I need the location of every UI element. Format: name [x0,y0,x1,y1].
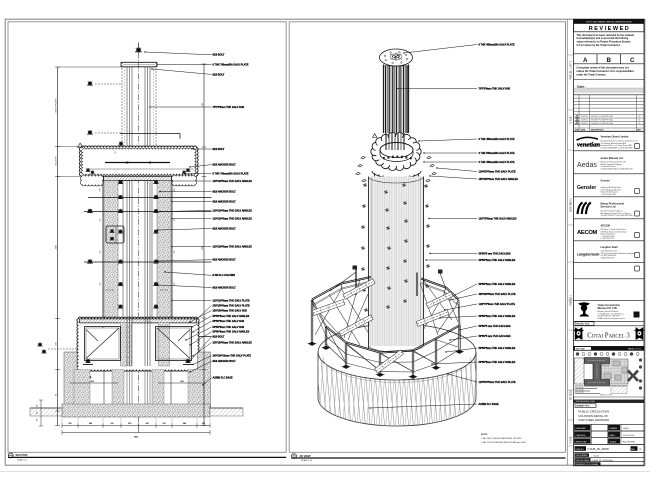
svg-text:Venetian Orient Limited: Venetian Orient Limited [601,136,629,139]
svg-text:W: W [639,123,641,125]
svg-text:ISSUED FOR APPROVAL: ISSUED FOR APPROVAL [591,115,613,118]
svg-text:PARCEL 3 SITE: PARCEL 3 SITE [600,394,613,397]
svg-text:F (852) 2576 0416: F (852) 2576 0416 [601,257,615,259]
svg-text:M16 ANCHOR BOLT: M16 ANCHOR BOLT [213,164,237,167]
svg-text:PARCEL 1: PARCEL 1 [569,294,572,306]
svg-text:W: W [639,120,641,122]
svg-text:M16 BOLT: M16 BOLT [213,73,225,76]
svg-text:DESIGNED: DESIGNED [576,428,587,430]
svg-text:50*50*6mm THK GALV ANGLES: 50*50*6mm THK GALV ANGLES [213,331,250,334]
svg-text:Tel: (853) 2843 3771 Fax: (85: Tel: (853) 2843 3771 Fax: (853) 2843 378… [601,215,633,217]
svg-text:Gensler: Gensler [601,180,610,183]
svg-text:COTAI PARCEL 3: COTAI PARCEL 3 [587,333,630,340]
svg-text:C: C [640,447,642,451]
svg-text:SYM: SYM [575,129,579,131]
svg-text:364 (TYP): 364 (TYP) [55,156,57,165]
svg-text:M16 ANCHOR BOLT: M16 ANCHOR BOLT [213,191,237,194]
svg-text:AECOM: AECOM [577,230,598,236]
svg-text:6 THK 450mmDIA GALV PLATE: 6 THK 450mmDIA GALV PLATE [479,138,515,141]
svg-text:ISSUED FOR APPROVAL: ISSUED FOR APPROVAL [591,119,613,122]
svg-text:PROJECT TITLE: PROJECT TITLE [576,324,590,326]
svg-text:NOTE:: NOTE: [481,434,488,436]
svg-text:120*120*6mm THK GALV ANGLES: 120*120*6mm THK GALV ANGLES [213,246,253,249]
svg-text:M16 ANCHOR BOLT: M16 ANCHOR BOLT [213,200,237,203]
svg-text:M16 ANCHOR BOLT: M16 ANCHOR BOLT [213,259,237,262]
svg-text:14-10-2015: 14-10-2015 [623,435,635,437]
svg-text:73*73*6mm THK GALV SHS: 73*73*6mm THK GALV SHS [213,106,245,109]
svg-text:1/20*73*6mm THK GALV PLATE: 1/20*73*6mm THK GALV PLATE [479,303,516,306]
svg-text:50*50*5mm THK GALV ANGLES: 50*50*5mm THK GALV ANGLES [479,347,516,350]
svg-text:A: A [583,57,588,64]
svg-text:150*150*6mm THK GALV ANGLES: 150*150*6mm THK GALV ANGLES [213,341,253,344]
svg-text:DATE: DATE [581,128,587,131]
svg-text:V-SUB: V-SUB [570,116,572,123]
svg-text:150*150*6mm THK GALV ANGLES: 150*150*6mm THK GALV ANGLES [479,178,519,181]
svg-text:SCALE 1:5: SCALE 1:5 [17,458,28,461]
svg-text:50*50*6mm THK GALV SHS: 50*50*6mm THK GALV SHS [213,320,245,323]
svg-text:35050 REV C: 35050 REV C [570,198,572,212]
svg-text:DRAWN: DRAWN [610,427,618,430]
svg-text:under the Trade Contract.: under the Trade Contract. [577,73,607,76]
svg-text:02: 02 [293,454,295,456]
svg-text:120*670*6mm THK GALV PLATE: 120*670*6mm THK GALV PLATE [479,170,517,173]
svg-text:150*150*6mm THK GALV PLATE: 150*150*6mm THK GALV PLATE [213,304,251,307]
svg-text:50*50*5 mm THK GALV.SHS: 50*50*5 mm THK GALV.SHS [479,335,511,338]
svg-text:100*100*10mm THK GALV PLATE: 100*100*10mm THK GALV PLATE [213,355,252,358]
svg-text:LKHO: LKHO [623,428,629,430]
svg-text:A25M2 R.C BASE: A25M2 R.C BASE [213,377,234,380]
svg-text:50*50*5 mm THK GALV.SHS: 50*50*5 mm THK GALV.SHS [479,252,511,255]
svg-text:120*73*6mm THK GALV ANGLES: 120*73*6mm THK GALV ANGLES [479,217,517,220]
svg-text:3D VIEW: 3D VIEW [300,454,312,458]
svg-text:SCALE: SCALE [610,441,617,444]
svg-text:V-SUB_FD_35050: V-SUB_FD_35050 [588,447,610,451]
svg-text:Langdon Seah: Langdon Seah [601,246,619,249]
svg-text:CAD NUMBER: CAD NUMBER [576,454,589,457]
svg-text:50*50*6mm THK GALV SHS: 50*50*6mm THK GALV SHS [213,326,245,329]
svg-text:73*73*6mm THK GALV SHS: 73*73*6mm THK GALV SHS [479,87,511,90]
svg-text:A25M2 R.C BASE: A25M2 R.C BASE [479,403,500,406]
svg-text:500: 500 [100,283,102,286]
svg-text:DESCRIPTION: DESCRIPTION [591,129,604,131]
svg-text:AECOM: AECOM [601,225,610,228]
svg-text:6 THK 700mmDIA GALV PLATE: 6 THK 700mmDIA GALV PLATE [213,173,249,176]
svg-text:CHECKED: CHECKED [576,435,586,437]
svg-text:500: 500 [174,283,176,286]
svg-text:150: 150 [37,419,39,422]
svg-text:1786 (TYP) SHS: 1786 (TYP) SHS [55,98,57,114]
svg-text:5.4 for action by the Trade Co: 5.4 for action by the Trade Contractor. [577,44,621,47]
svg-text:V-SUB: V-SUB [570,436,572,443]
svg-text:AS SHOWN: AS SHOWN [623,441,635,444]
svg-text:50*50*6mm THK GALV ANGLES: 50*50*6mm THK GALV ANGLES [213,315,250,318]
svg-text:50*50*5mm THK GALV ANGLES: 50*50*5mm THK GALV ANGLES [479,283,516,286]
svg-text:Services Ltd.: Services Ltd. [601,206,617,209]
svg-text:Gensler: Gensler [577,185,596,191]
svg-text:DATE: DATE [610,434,616,437]
svg-text:120*120*6mm THK GALV ANGLES: 120*120*6mm THK GALV ANGLES [213,180,253,183]
svg-text:6 THK 450mmDIA GALV PLATE: 6 THK 450mmDIA GALV PLATE [479,161,515,164]
svg-text:Tel: 2878 7633 Fax: 2878 7999: Tel: 2878 7633 Fax: 2878 7999 [598,316,620,318]
svg-text:Aedas (Macau) Ltd.: Aedas (Macau) Ltd. [601,157,624,160]
svg-text:50*50*5 mm THK GALV.SHS: 50*50*5 mm THK GALV.SHS [479,325,511,328]
svg-text:2. ALL FILLET WELDED SHOULD BE: 2. ALL FILLET WELDED SHOULD BE 6mm THK. [481,441,526,444]
svg-text:# 300 R.C COLUMN: # 300 R.C COLUMN [213,274,236,277]
svg-text:120*120*6mm THK GALV ANGLES: 120*120*6mm THK GALV ANGLES [213,209,253,212]
svg-text:6 THK 450mmDIA GALV PLATE: 6 THK 450mmDIA GALV PLATE [479,43,515,46]
svg-text:F +852 3922 9797: F +852 3922 9797 [601,238,615,240]
svg-text:C: C [630,57,635,64]
svg-text:M16 BOLT: M16 BOLT [213,148,225,151]
svg-text:M16 BOLT: M16 BOLT [213,336,225,339]
svg-text:6 THK 500mmDIA GALV PLATE: 6 THK 500mmDIA GALV PLATE [479,152,515,155]
svg-text:FD 35050: FD 35050 [570,389,572,400]
svg-text:M16 ANCHOR BOLT: M16 ANCHOR BOLT [213,286,237,289]
svg-text:150: 150 [37,412,39,415]
svg-text:1. ALL BOLT SHOULD BE FIXING O: 1. ALL BOLT SHOULD BE FIXING ON SITE. [481,437,522,440]
svg-text:120*670*6mm THK GALV PLATE: 120*670*6mm THK GALV PLATE [479,381,517,384]
svg-text:50*50*5mm THK GALV ANGLES: 50*50*5mm THK GALV ANGLES [479,361,516,364]
svg-text:W: W [639,116,641,118]
svg-text:REFERENCE ON FILE NAME: REFERENCE ON FILE NAME [576,463,600,466]
svg-text:50*50*5mm THK GALV ANGLES: 50*50*5mm THK GALV ANGLES [479,315,516,318]
svg-text:V-124: V-124 [594,455,600,457]
svg-text:R E V I E W E D: R E V I E W E D [589,26,629,32]
svg-text:(Macau) CO. LTD.: (Macau) CO. LTD. [598,307,618,310]
svg-text:M16 ANCHOR BOLT: M16 ANCHOR BOLT [213,227,237,230]
svg-text:Aedas: Aedas [577,162,597,169]
svg-text:KEY PLAN: KEY PLAN [576,347,585,350]
svg-text:B: B [607,57,612,64]
svg-text:460*200*8mm THK GALV PLATE: 460*200*8mm THK GALV PLATE [479,293,517,296]
svg-text:T +81 10.6432.9228: T +81 10.6432.9228 [601,194,616,196]
svg-text:12/08/15: 12/08/15 [581,116,588,118]
svg-text:6 THK 700mmDIA GALV PLATE: 6 THK 700mmDIA GALV PLATE [213,64,249,67]
svg-text:01: 01 [10,454,12,456]
svg-text:500: 500 [100,251,102,254]
svg-text:SCALE 1:10: SCALE 1:10 [301,459,313,462]
svg-text:DWG NO: DWG NO [576,449,585,451]
svg-text:500: 500 [100,219,102,222]
svg-text:500: 500 [174,189,176,192]
svg-text:SECTION: SECTION [16,453,28,457]
svg-text:Tel: (853) 2833 1028 Fax: (85: Tel: (853) 2833 1028 Fax: (853) 2833 102… [601,168,633,170]
svg-text:venetian: venetian [577,141,600,148]
svg-text:M16 BOLT: M16 BOLT [213,54,225,57]
svg-text:150: 150 [37,405,39,408]
svg-text:120*120*6mm THK GALV ANGLES: 120*120*6mm THK GALV ANGLES [213,218,253,221]
svg-text:12/08/15: 12/08/15 [581,120,588,122]
svg-text:FOR STEEL DRAWING: FOR STEEL DRAWING [579,418,610,422]
svg-text:DRAWING TITLE: DRAWING TITLE [576,405,590,408]
svg-text:PARCEL 1, LOT 2: PARCEL 1, LOT 2 [569,60,572,79]
svg-text:M16 ANCHOR BOLT: M16 ANCHOR BOLT [213,360,237,363]
svg-text:Tel: (853) 2882 8888 Fax: (8: Tel: (853) 2882 8888 Fax: (853) 2882 888… [601,147,633,149]
svg-text:APPROVED: APPROVED [576,441,588,444]
svg-text:150*150*6mm THK GALV SHS: 150*150*6mm THK GALV SHS [213,309,248,312]
svg-text:ISSUED FOR APPROVAL: ISSUED FOR APPROVAL [591,122,613,125]
svg-text:500: 500 [174,251,176,254]
svg-text:LangdonSeah: LangdonSeah [577,253,599,257]
svg-text:12/08/15: 12/08/15 [581,123,588,125]
svg-text:50*50*5mm THK GALV ANGLES: 50*50*5mm THK GALV ANGLES [479,259,516,262]
svg-text:500: 500 [100,189,102,192]
svg-text:120*120*6mm THK GALV PLATE: 120*120*6mm THK GALV PLATE [213,300,251,303]
